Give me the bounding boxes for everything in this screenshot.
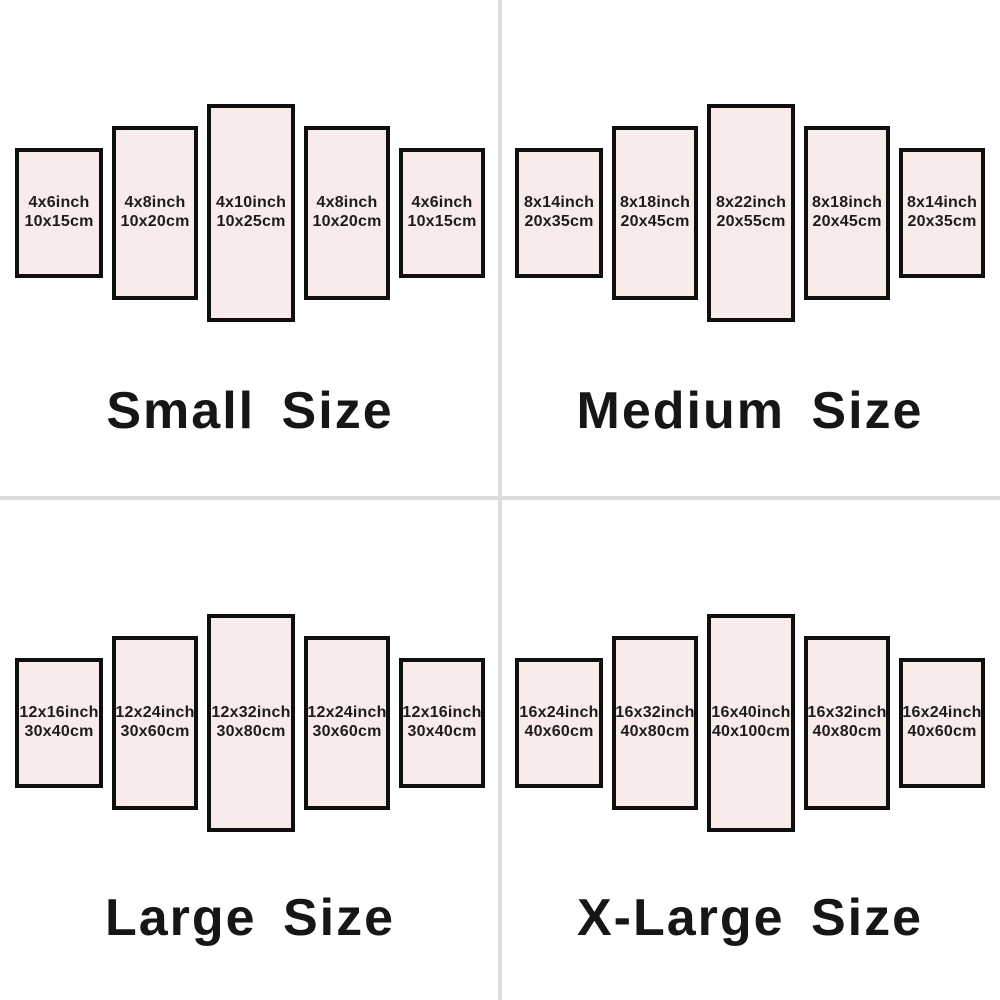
panel-label: 16x40inch 40x100cm [711, 704, 790, 742]
panel-size-inch: 8x18inch [812, 194, 882, 213]
panel-label: 12x16inch 30x40cm [402, 704, 481, 742]
panel-size-inch: 4x6inch [407, 194, 476, 213]
quadrant-xlarge-size: 16x24inch 40x60cm 16x32inch 40x80cm 16x4… [500, 500, 1000, 1000]
panel-size-inch: 8x18inch [620, 194, 690, 213]
panel-size-cm: 40x60cm [519, 723, 598, 742]
panel-label: 8x14inch 20x35cm [524, 194, 594, 232]
panel-size-cm: 20x35cm [524, 213, 594, 232]
panel-size-cm: 10x25cm [216, 213, 286, 232]
panel-label: 4x10inch 10x25cm [216, 194, 286, 232]
panel-size-cm: 40x80cm [615, 723, 694, 742]
panel-label: 4x6inch 10x15cm [407, 194, 476, 232]
size-panel: 4x8inch 10x20cm [304, 126, 390, 300]
size-panel: 16x24inch 40x60cm [899, 658, 985, 788]
quadrant-small-size: 4x6inch 10x15cm 4x8inch 10x20cm 4x10inch… [0, 0, 500, 500]
size-panel: 12x32inch 30x80cm [207, 614, 295, 832]
panel-size-inch: 12x16inch [402, 704, 481, 723]
size-panel: 16x40inch 40x100cm [707, 614, 795, 832]
panel-label: 4x6inch 10x15cm [24, 194, 93, 232]
panel-size-inch: 4x10inch [216, 194, 286, 213]
panel-layout: 12x16inch 30x40cm 12x24inch 30x60cm 12x3… [0, 500, 500, 946]
panel-size-cm: 10x20cm [312, 213, 381, 232]
panel-layout: 8x14inch 20x35cm 8x18inch 20x45cm 8x22in… [500, 0, 1000, 426]
panel-label: 16x24inch 40x60cm [519, 704, 598, 742]
size-group-title: Medium Size [500, 381, 1000, 441]
panel-size-cm: 40x80cm [807, 723, 886, 742]
panel-label: 4x8inch 10x20cm [312, 194, 381, 232]
panel-size-cm: 20x35cm [907, 213, 977, 232]
size-panel: 8x22inch 20x55cm [707, 104, 795, 322]
panel-size-cm: 40x60cm [902, 723, 981, 742]
size-panel: 4x6inch 10x15cm [15, 148, 103, 278]
panel-size-inch: 12x24inch [115, 704, 194, 723]
panel-size-cm: 30x40cm [402, 723, 481, 742]
size-group-title: X-Large Size [500, 888, 1000, 948]
size-panel: 8x14inch 20x35cm [515, 148, 603, 278]
quadrant-medium-size: 8x14inch 20x35cm 8x18inch 20x45cm 8x22in… [500, 0, 1000, 500]
size-panel: 4x10inch 10x25cm [207, 104, 295, 322]
size-panel: 12x16inch 30x40cm [399, 658, 485, 788]
size-panel: 12x24inch 30x60cm [304, 636, 390, 810]
panel-size-inch: 12x32inch [211, 704, 290, 723]
panel-label: 12x16inch 30x40cm [19, 704, 98, 742]
panel-label: 8x14inch 20x35cm [907, 194, 977, 232]
panel-size-cm: 30x60cm [307, 723, 386, 742]
panel-size-inch: 16x40inch [711, 704, 790, 723]
horizontal-divider [0, 496, 1000, 500]
size-panel: 4x8inch 10x20cm [112, 126, 198, 300]
panel-layout: 4x6inch 10x15cm 4x8inch 10x20cm 4x10inch… [0, 0, 500, 426]
panel-label: 8x22inch 20x55cm [716, 194, 786, 232]
size-group-title: Large Size [0, 888, 500, 948]
panel-label: 16x24inch 40x60cm [902, 704, 981, 742]
size-panel: 16x32inch 40x80cm [804, 636, 890, 810]
panel-size-inch: 4x8inch [312, 194, 381, 213]
panel-size-inch: 16x24inch [902, 704, 981, 723]
size-panel: 4x6inch 10x15cm [399, 148, 485, 278]
panel-size-inch: 4x6inch [24, 194, 93, 213]
panel-size-inch: 12x16inch [19, 704, 98, 723]
panel-layout: 16x24inch 40x60cm 16x32inch 40x80cm 16x4… [500, 500, 1000, 946]
panel-size-cm: 10x20cm [120, 213, 189, 232]
panel-label: 16x32inch 40x80cm [807, 704, 886, 742]
panel-label: 16x32inch 40x80cm [615, 704, 694, 742]
panel-label: 4x8inch 10x20cm [120, 194, 189, 232]
size-chart: 4x6inch 10x15cm 4x8inch 10x20cm 4x10inch… [0, 0, 1000, 1000]
size-panel: 8x14inch 20x35cm [899, 148, 985, 278]
panel-size-cm: 40x100cm [711, 723, 790, 742]
size-panel: 8x18inch 20x45cm [612, 126, 698, 300]
size-panel: 8x18inch 20x45cm [804, 126, 890, 300]
size-panel: 12x16inch 30x40cm [15, 658, 103, 788]
panel-size-cm: 30x40cm [19, 723, 98, 742]
panel-label: 12x24inch 30x60cm [115, 704, 194, 742]
panel-label: 8x18inch 20x45cm [812, 194, 882, 232]
size-panel: 16x32inch 40x80cm [612, 636, 698, 810]
panel-size-inch: 16x32inch [615, 704, 694, 723]
panel-size-inch: 16x24inch [519, 704, 598, 723]
panel-size-inch: 12x24inch [307, 704, 386, 723]
panel-size-inch: 4x8inch [120, 194, 189, 213]
panel-size-inch: 8x14inch [524, 194, 594, 213]
size-panel: 16x24inch 40x60cm [515, 658, 603, 788]
panel-label: 8x18inch 20x45cm [620, 194, 690, 232]
panel-size-cm: 10x15cm [407, 213, 476, 232]
panel-size-cm: 30x80cm [211, 723, 290, 742]
panel-label: 12x24inch 30x60cm [307, 704, 386, 742]
quadrant-large-size: 12x16inch 30x40cm 12x24inch 30x60cm 12x3… [0, 500, 500, 1000]
panel-size-cm: 20x45cm [812, 213, 882, 232]
panel-size-inch: 16x32inch [807, 704, 886, 723]
panel-size-cm: 30x60cm [115, 723, 194, 742]
panel-size-inch: 8x14inch [907, 194, 977, 213]
panel-size-cm: 20x55cm [716, 213, 786, 232]
size-panel: 12x24inch 30x60cm [112, 636, 198, 810]
vertical-divider [498, 0, 502, 1000]
panel-size-cm: 20x45cm [620, 213, 690, 232]
panel-label: 12x32inch 30x80cm [211, 704, 290, 742]
panel-size-inch: 8x22inch [716, 194, 786, 213]
size-group-title: Small Size [0, 381, 500, 441]
panel-size-cm: 10x15cm [24, 213, 93, 232]
